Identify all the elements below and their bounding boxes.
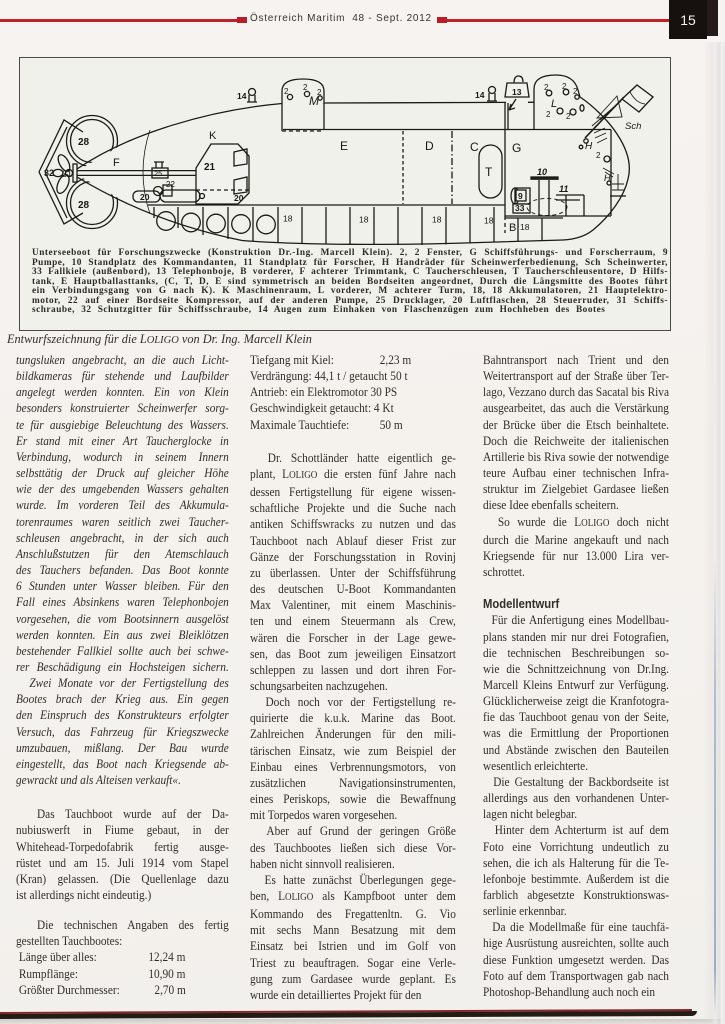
svg-text:21: 21 <box>204 162 216 173</box>
svg-text:F: F <box>113 157 120 169</box>
svg-text:22: 22 <box>166 180 175 189</box>
svg-text:18: 18 <box>484 216 494 226</box>
svg-text:11: 11 <box>559 184 568 194</box>
svg-text:E: E <box>340 139 348 153</box>
svg-text:2: 2 <box>562 82 567 91</box>
svg-text:2: 2 <box>303 83 308 92</box>
svg-text:D: D <box>425 139 434 153</box>
svg-text:T: T <box>485 165 493 179</box>
svg-text:2: 2 <box>546 110 551 119</box>
svg-text:Sch: Sch <box>625 121 641 132</box>
svg-text:32: 32 <box>44 168 54 178</box>
svg-text:C: C <box>470 140 479 154</box>
svg-text:K: K <box>209 130 217 142</box>
svg-text:13: 13 <box>512 87 522 97</box>
svg-text:20: 20 <box>234 193 244 203</box>
svg-text:14: 14 <box>475 90 485 100</box>
svg-text:18: 18 <box>283 214 293 224</box>
svg-text:18: 18 <box>520 222 530 232</box>
svg-text:2: 2 <box>284 87 289 96</box>
svg-text:9: 9 <box>518 191 523 201</box>
svg-text:18: 18 <box>359 215 369 225</box>
svg-text:18: 18 <box>432 215 442 225</box>
svg-text:14: 14 <box>237 91 247 101</box>
svg-text:2: 2 <box>573 87 578 96</box>
svg-text:2: 2 <box>544 83 549 92</box>
svg-text:G: G <box>512 141 521 155</box>
svg-text:28: 28 <box>78 137 90 148</box>
svg-text:33: 33 <box>515 203 525 213</box>
svg-text:28: 28 <box>78 200 90 211</box>
svg-text:B: B <box>509 222 516 234</box>
svg-text:L: L <box>551 98 557 110</box>
svg-text:H: H <box>604 173 611 183</box>
svg-text:2: 2 <box>596 151 601 160</box>
svg-text:25: 25 <box>154 169 162 178</box>
svg-text:10: 10 <box>537 167 547 177</box>
svg-text:M: M <box>309 94 319 108</box>
svg-text:20: 20 <box>140 192 150 202</box>
svg-text:H: H <box>585 141 593 152</box>
svg-text:2: 2 <box>566 112 571 121</box>
svg-text:31: 31 <box>62 169 72 179</box>
